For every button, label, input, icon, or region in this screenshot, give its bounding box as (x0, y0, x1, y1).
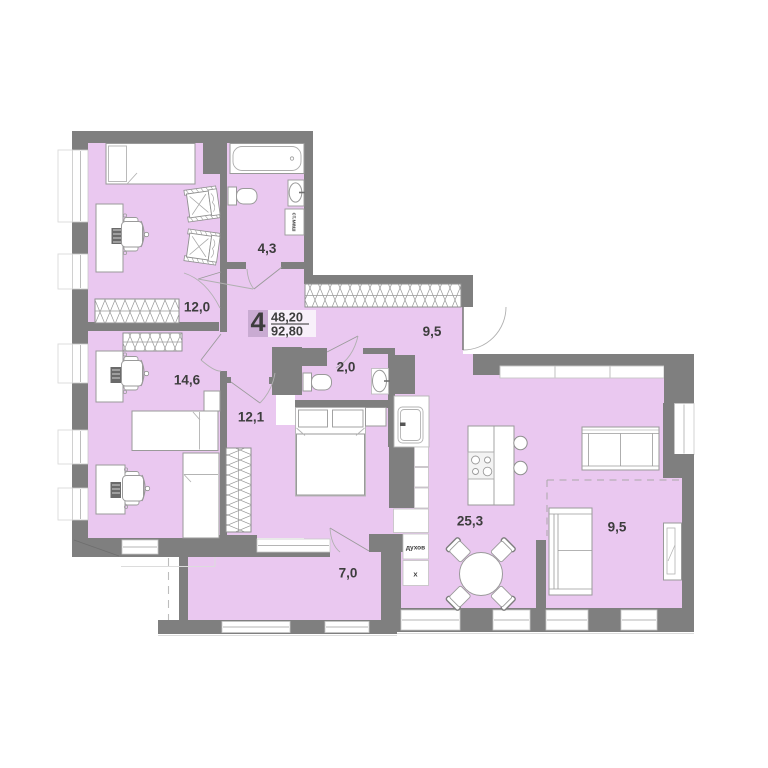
svg-text:духов: духов (406, 545, 425, 552)
svg-text:48,20: 48,20 (271, 310, 303, 325)
svg-text:25,3: 25,3 (457, 514, 484, 529)
svg-text:14,6: 14,6 (174, 373, 201, 388)
svg-text:9,5: 9,5 (608, 520, 627, 535)
svg-text:2,0: 2,0 (337, 360, 356, 375)
svg-text:12,0: 12,0 (184, 300, 210, 315)
svg-text:4: 4 (250, 307, 265, 337)
svg-text:9,5: 9,5 (423, 324, 442, 339)
svg-text:4,3: 4,3 (258, 241, 277, 256)
svg-text:7,0: 7,0 (339, 566, 358, 581)
svg-text:92,80: 92,80 (271, 324, 303, 339)
svg-text:ст.маш: ст.маш (291, 212, 297, 231)
svg-text:12,1: 12,1 (238, 410, 265, 425)
